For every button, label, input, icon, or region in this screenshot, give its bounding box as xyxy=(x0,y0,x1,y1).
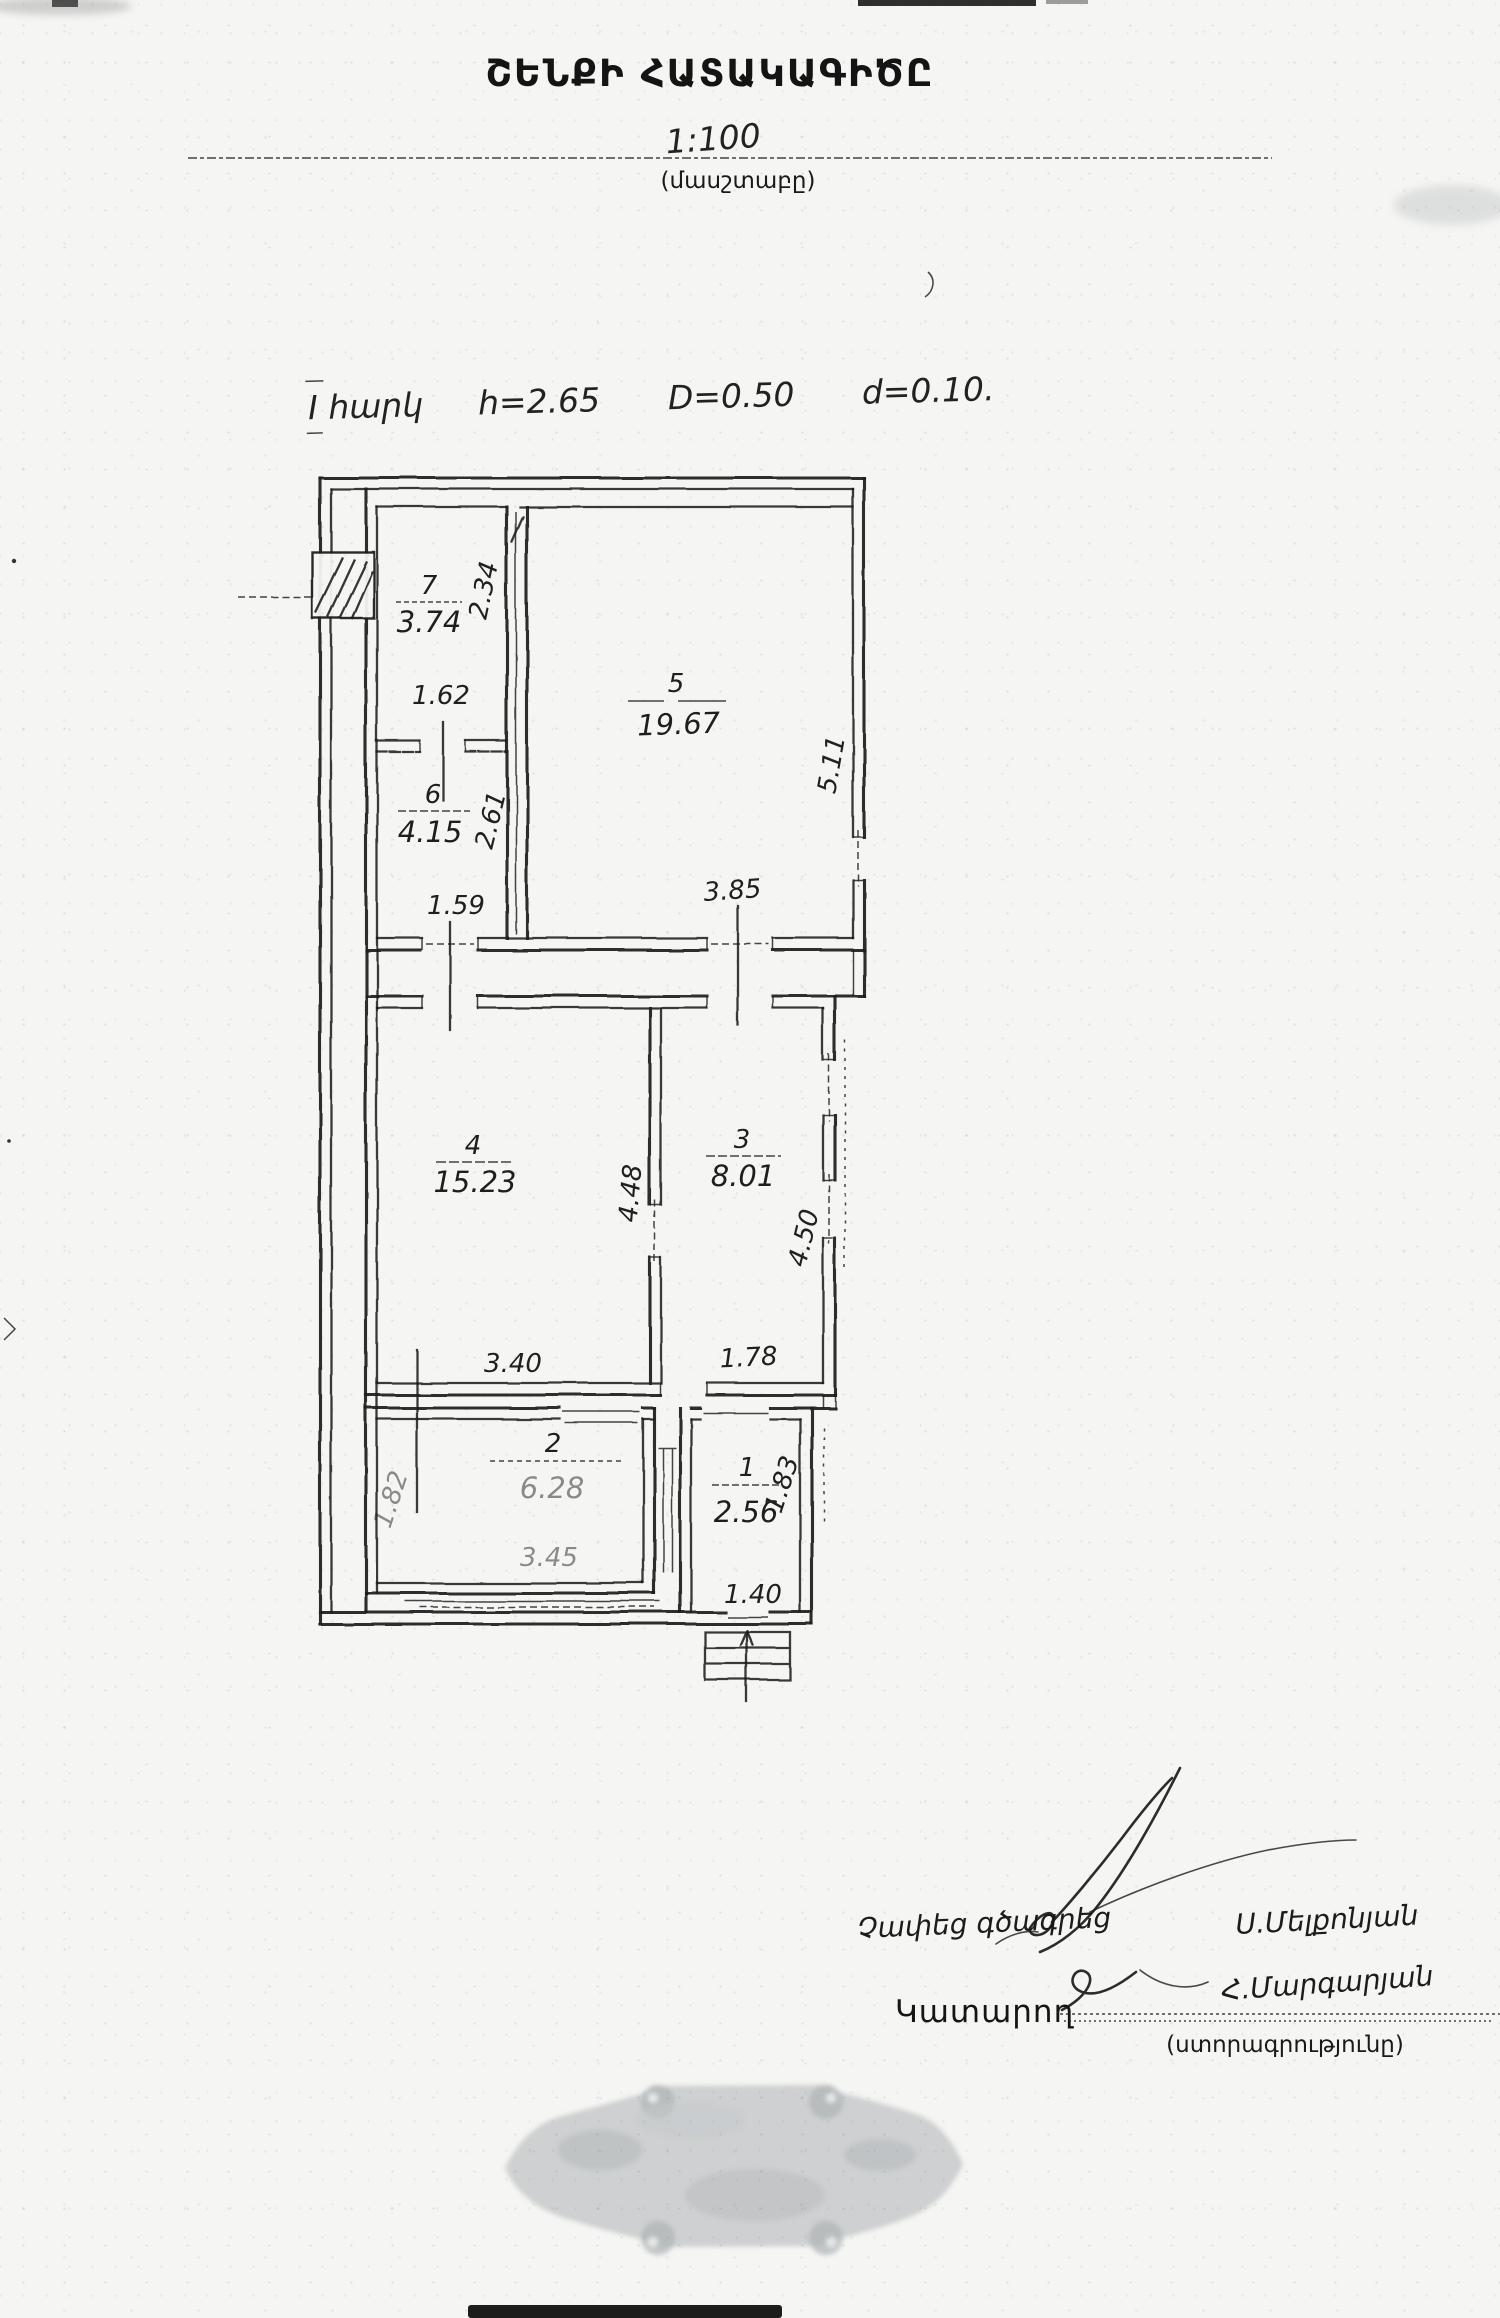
room-7-number: 7 xyxy=(421,571,438,601)
handwritten-note: I հարկ h=2.65 D=0.50 d=0.10. xyxy=(305,362,995,433)
room-1-width-dim: 1.40 xyxy=(724,1580,782,1610)
note-D: D=0.50 xyxy=(667,375,795,418)
room-6-number: 6 xyxy=(425,780,442,810)
room-5-width-dim: 3.85 xyxy=(703,874,763,908)
room-4-area: 15.23 xyxy=(433,1165,516,1199)
note-d: d=0.10. xyxy=(861,369,995,412)
header: ՇԵՆՔԻ ՀԱՏԱԿԱԳԻԾԸ 1:100 (մասշտաբը) xyxy=(188,52,1272,194)
performer-label: Կատարող xyxy=(895,1994,1075,2030)
performer-signature: Հ.Մարգարյան xyxy=(1062,1959,1434,2010)
pen-mark-left-edge xyxy=(4,1318,15,1340)
room-1-number: 1 xyxy=(739,1453,756,1483)
signature-caption: (ստորագրությունը) xyxy=(1166,2032,1404,2058)
measured-note-handwritten: Չափեց գծագրեց xyxy=(857,1901,1112,1945)
scan-bottom-smudge xyxy=(468,2305,782,2318)
scanned-document-page: ՇԵՆՔԻ ՀԱՏԱԿԱԳԻԾԸ 1:100 (մասշտաբը) I հարկ… xyxy=(0,0,1500,2318)
room-6-area: 4.15 xyxy=(398,815,463,849)
page-title: ՇԵՆՔԻ ՀԱՏԱԿԱԳԻԾԸ xyxy=(486,52,935,95)
note-floor: I հարկ xyxy=(308,385,424,427)
room-labels: 7 3.74 1.62 2.34 6 4.15 1.59 2.61 5 19.6… xyxy=(368,559,852,1610)
chimney-hatch xyxy=(238,552,374,618)
stamp-seal xyxy=(505,2085,963,2255)
room-7-height-dim: 2.34 xyxy=(463,559,504,622)
entrance-steps xyxy=(705,1631,790,1702)
room-5-height-dim: 5.11 xyxy=(812,734,852,796)
room-2-number: 2 xyxy=(545,1429,562,1459)
surveyor-name-handwritten: Ս.Մելքոնյան xyxy=(1235,1898,1419,1941)
room-5-area: 19.67 xyxy=(637,706,722,743)
room-6-width-dim: 1.59 xyxy=(427,891,485,921)
floor-plan-drawing: ՇԵՆՔԻ ՀԱՏԱԿԱԳԻԾԸ 1:100 (մասշտաբը) I հարկ… xyxy=(0,0,1500,2318)
performer-name-handwritten: Հ.Մարգարյան xyxy=(1220,1959,1434,2007)
plan-walls xyxy=(320,478,864,1624)
room-1-height-dim: 1.83 xyxy=(759,1452,805,1516)
signature-block: Չափեց գծագրեց Ս.Մելքոնյան Կատարող Հ.Մարգ… xyxy=(857,1768,1500,2058)
room-3-width-dim: 1.78 xyxy=(719,1342,778,1375)
svg-text:I հարկ h=2.65 D=0.: I հարկ h=2.65 D=0.50 d=0.10. xyxy=(308,369,995,427)
room-5-number: 5 xyxy=(668,669,685,699)
room-4-height-dim: 4.48 xyxy=(614,1163,649,1223)
pen-mark-top-right xyxy=(925,272,933,297)
room-2-width-dim: 3.45 xyxy=(520,1543,578,1573)
room-7-area: 3.74 xyxy=(397,605,462,639)
room-2-area: 6.28 xyxy=(520,1471,585,1505)
room-3-number: 3 xyxy=(734,1125,751,1155)
room-3-height-dim: 4.50 xyxy=(783,1206,826,1269)
scale-caption: (մասշտաբը) xyxy=(661,168,816,194)
room-3-area: 8.01 xyxy=(711,1159,776,1193)
note-h: h=2.65 xyxy=(477,380,600,422)
scale-value-handwritten: 1:100 xyxy=(664,116,762,162)
room-4-width-dim: 3.40 xyxy=(484,1349,542,1379)
room-7-width-dim: 1.62 xyxy=(412,681,470,711)
room-2-height-dim: 1.82 xyxy=(368,1467,414,1531)
room-4-number: 4 xyxy=(465,1131,482,1161)
